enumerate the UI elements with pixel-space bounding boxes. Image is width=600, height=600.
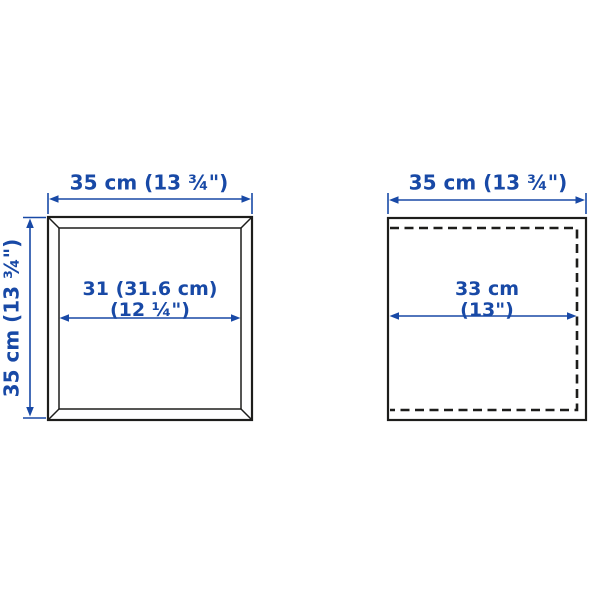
left-inner-width-label-line2: (12 ¼") bbox=[83, 300, 218, 321]
arrowhead-left bbox=[389, 196, 399, 204]
right-inner-depth-label-line2: (13") bbox=[455, 300, 519, 321]
right-top-dimension-label: 35 cm (13 ¾") bbox=[409, 173, 568, 194]
arrowhead-right bbox=[576, 196, 586, 204]
arrowhead-down bbox=[26, 407, 34, 417]
left-top-dimension-label: 35 cm (13 ¾") bbox=[70, 173, 229, 194]
left-top-dimension-arrow bbox=[48, 193, 252, 214]
right-top-dimension-arrow bbox=[388, 193, 586, 214]
product-dimension-diagram: 35 cm (13 ¾") 35 cm (13 ¾") 31 (31.6 cm)… bbox=[0, 0, 600, 600]
arrowhead-up bbox=[26, 219, 34, 229]
left-inner-width-label-line1: 31 (31.6 cm) bbox=[83, 279, 218, 300]
left-side-dimension-arrow bbox=[23, 218, 46, 419]
arrowhead-left bbox=[49, 195, 59, 203]
right-inner-depth-label-line1: 33 cm bbox=[455, 279, 519, 300]
left-side-dimension-label: 35 cm (13 ¾") bbox=[2, 239, 23, 398]
right-inner-depth-label: 33 cm (13") bbox=[455, 279, 519, 321]
arrowhead-right bbox=[242, 195, 252, 203]
left-inner-width-label: 31 (31.6 cm) (12 ¼") bbox=[83, 279, 218, 321]
